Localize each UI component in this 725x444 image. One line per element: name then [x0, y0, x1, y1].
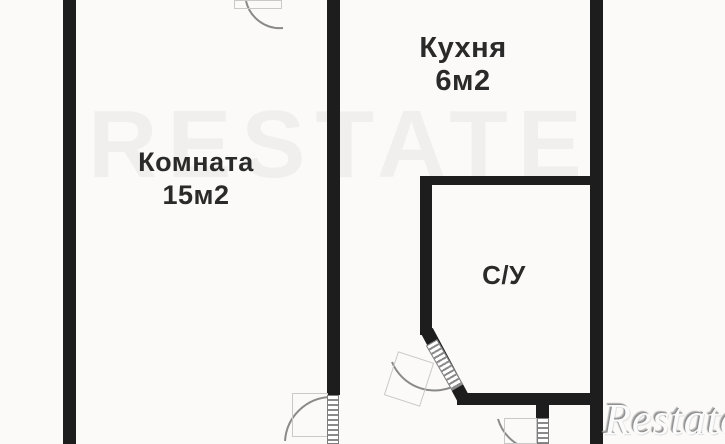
floor-plan: RESTATE Комната 15м2 Кухня 6м2 С/У Resta…	[0, 0, 725, 444]
room-area: 15м2	[76, 179, 316, 212]
room-label-kitchen: Кухня 6м2	[343, 32, 583, 98]
room-name: С/У	[434, 259, 574, 292]
room-label-bathroom: С/У	[434, 259, 574, 292]
door-panel-ghost-room-bottom	[292, 393, 328, 437]
room-name: Комната	[76, 146, 316, 179]
door-panel-ghost-hall	[504, 418, 537, 444]
room-name: Кухня	[343, 32, 583, 65]
room-area: 6м2	[343, 65, 583, 98]
door-leaf-hall	[537, 418, 549, 444]
door-leaf-room-bottom	[327, 395, 339, 444]
brand-watermark: Restate	[604, 396, 725, 444]
door-panel-ghost-room-top	[234, 0, 282, 9]
room-label-living: Комната 15м2	[76, 146, 316, 212]
